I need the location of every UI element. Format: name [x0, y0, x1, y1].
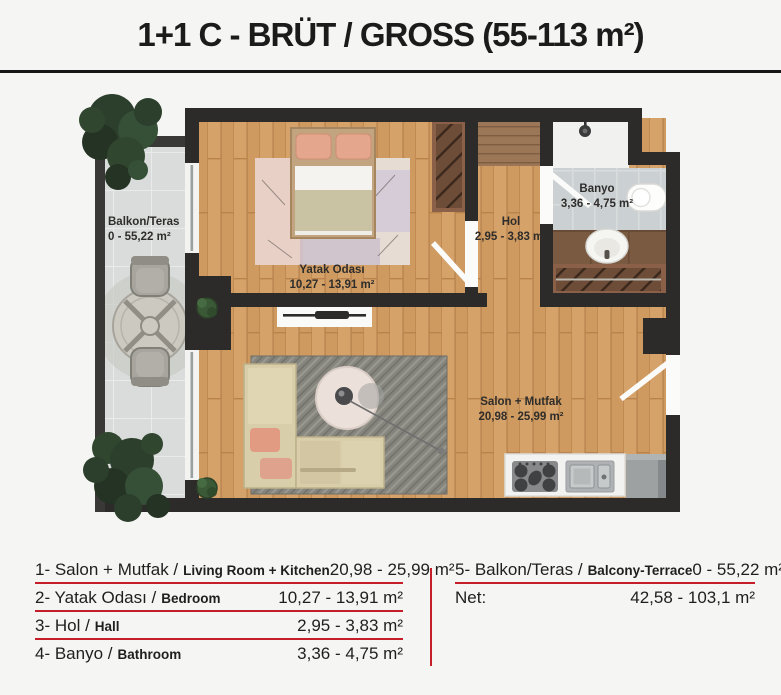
bed	[291, 128, 375, 238]
shower-area	[553, 118, 629, 168]
legend-row-living: 1- Salon + Mutfak /Living Room + Kitchen…	[35, 556, 403, 584]
legend-row-net: Net: 42,58 - 103,1 m²	[455, 584, 755, 610]
legend-label-tr: 1- Salon + Mutfak /	[35, 560, 178, 579]
legend-row-bedroom: 2- Yatak Odası /Bedroom 10,27 - 13,91 m²	[35, 584, 403, 612]
room-area: 20,98 - 25,99 m²	[478, 410, 563, 425]
bathroom-sink	[586, 229, 628, 263]
kitchen-sink	[566, 461, 614, 492]
room-name: Balkon/Teras	[108, 215, 179, 230]
net-value: 42,58 - 103,1 m²	[630, 588, 755, 608]
room-name: Yatak Odası	[289, 263, 374, 278]
legend-right-column: 5- Balkon/Teras /Balcony-Terrace 0 - 55,…	[455, 556, 755, 610]
legend-label-en: Balcony-Terrace	[588, 563, 693, 578]
legend-row-hall: 3- Hol /Hall 2,95 - 3,83 m²	[35, 612, 403, 640]
legend-value: 10,27 - 13,91 m²	[278, 588, 403, 608]
room-label-living: Salon + Mutfak 20,98 - 25,99 m²	[478, 395, 563, 425]
room-name: Hol	[475, 215, 547, 230]
room-label-balcony: Balkon/Teras 0 - 55,22 m²	[108, 215, 179, 245]
legend-label-en: Living Room + Kitchen	[183, 563, 330, 578]
bedroom-window	[185, 163, 199, 253]
legend-row-balcony: 5- Balkon/Teras /Balcony-Terrace 0 - 55,…	[455, 556, 755, 584]
room-area: 10,27 - 13,91 m²	[289, 278, 374, 293]
tv-console	[277, 305, 372, 327]
net-label: Net:	[455, 588, 486, 608]
legend-label-tr: 5- Balkon/Teras /	[455, 560, 583, 579]
legend-row-bathroom: 4- Banyo /Bathroom 3,36 - 4,75 m²	[35, 640, 403, 666]
legend-label-tr: 2- Yatak Odası /	[35, 588, 156, 607]
legend-label-en: Bedroom	[161, 591, 220, 606]
legend-label-en: Hall	[95, 619, 120, 634]
room-area: 0 - 55,22 m²	[108, 230, 179, 245]
room-label-bathroom: Banyo 3,36 - 4,75 m²	[561, 182, 633, 212]
room-area: 3,36 - 4,75 m²	[561, 197, 633, 212]
balcony-chair-top	[131, 256, 169, 296]
legend-value: 3,36 - 4,75 m²	[297, 644, 403, 664]
legend-value: 2,95 - 3,83 m²	[297, 616, 403, 636]
room-label-hall: Hol 2,95 - 3,83 m²	[475, 215, 547, 245]
legend-label-tr: 4- Banyo /	[35, 644, 113, 663]
legend-label-en: Bathroom	[118, 647, 182, 662]
living-glass-door	[185, 350, 199, 480]
room-label-bedroom: Yatak Odası 10,27 - 13,91 m²	[289, 263, 374, 293]
fridge-counter	[626, 454, 666, 498]
legend-value: 20,98 - 25,99 m²	[330, 560, 455, 580]
stove	[512, 461, 558, 492]
closet-unit	[551, 264, 666, 295]
wardrobe	[432, 120, 466, 212]
room-name: Banyo	[561, 182, 633, 197]
legend-label-tr: 3- Hol /	[35, 616, 90, 635]
floor-plan-page: 1+1 C - BRÜT / GROSS (55-113 m²)	[0, 0, 781, 695]
potted-plant-top	[197, 298, 217, 318]
room-name: Salon + Mutfak	[478, 395, 563, 410]
balcony-chair-bottom	[131, 348, 169, 386]
potted-plant-bottom	[197, 478, 217, 498]
legend-column-divider	[430, 568, 432, 666]
legend-left-column: 1- Salon + Mutfak /Living Room + Kitchen…	[35, 556, 403, 666]
entry-mat	[478, 120, 540, 166]
legend-value: 0 - 55,22 m²	[692, 560, 781, 580]
room-area: 2,95 - 3,83 m²	[475, 230, 547, 245]
